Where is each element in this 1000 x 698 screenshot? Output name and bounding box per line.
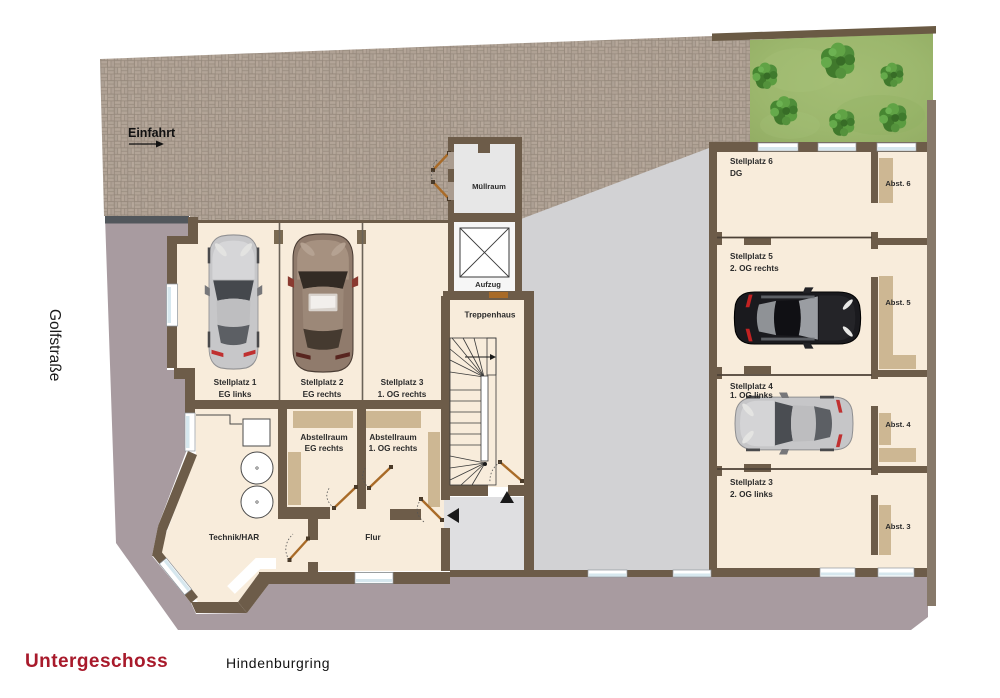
svg-text:1. OG rechts: 1. OG rechts [369, 444, 418, 453]
svg-text:1. OG links: 1. OG links [730, 391, 773, 400]
svg-text:Abstellraum: Abstellraum [369, 433, 416, 442]
svg-text:Flur: Flur [365, 533, 381, 542]
svg-text:Abst. 4: Abst. 4 [885, 420, 911, 429]
svg-text:Stellplatz 4: Stellplatz 4 [730, 382, 773, 391]
svg-text:Technik/HAR: Technik/HAR [209, 533, 259, 542]
svg-text:2. OG rechts: 2. OG rechts [730, 264, 779, 273]
svg-text:Abst. 5: Abst. 5 [885, 298, 911, 307]
svg-text:EG rechts: EG rechts [305, 444, 344, 453]
svg-text:Abst. 6: Abst. 6 [885, 179, 910, 188]
svg-text:EG rechts: EG rechts [303, 390, 342, 399]
svg-text:Aufzug: Aufzug [475, 280, 501, 289]
svg-text:Stellplatz 5: Stellplatz 5 [730, 252, 773, 261]
svg-text:Einfahrt: Einfahrt [128, 126, 176, 140]
svg-text:Stellplatz 1: Stellplatz 1 [214, 378, 257, 387]
svg-text:Stellplatz 3: Stellplatz 3 [730, 478, 773, 487]
svg-text:Golfstraße: Golfstraße [46, 309, 63, 381]
svg-text:DG: DG [730, 169, 742, 178]
svg-text:EG links: EG links [219, 390, 252, 399]
svg-text:1. OG rechts: 1. OG rechts [378, 390, 427, 399]
svg-text:Stellplatz 2: Stellplatz 2 [301, 378, 344, 387]
svg-text:Stellplatz 3: Stellplatz 3 [381, 378, 424, 387]
svg-text:Treppenhaus: Treppenhaus [465, 311, 516, 320]
svg-text:Hindenburgring: Hindenburgring [226, 655, 330, 671]
svg-text:Abstellraum: Abstellraum [300, 433, 347, 442]
svg-text:Untergeschoss: Untergeschoss [25, 651, 168, 672]
svg-text:Müllraum: Müllraum [472, 182, 506, 191]
svg-text:Stellplatz 6: Stellplatz 6 [730, 157, 773, 166]
svg-text:2. OG links: 2. OG links [730, 490, 773, 499]
svg-text:Abst. 3: Abst. 3 [885, 522, 910, 531]
